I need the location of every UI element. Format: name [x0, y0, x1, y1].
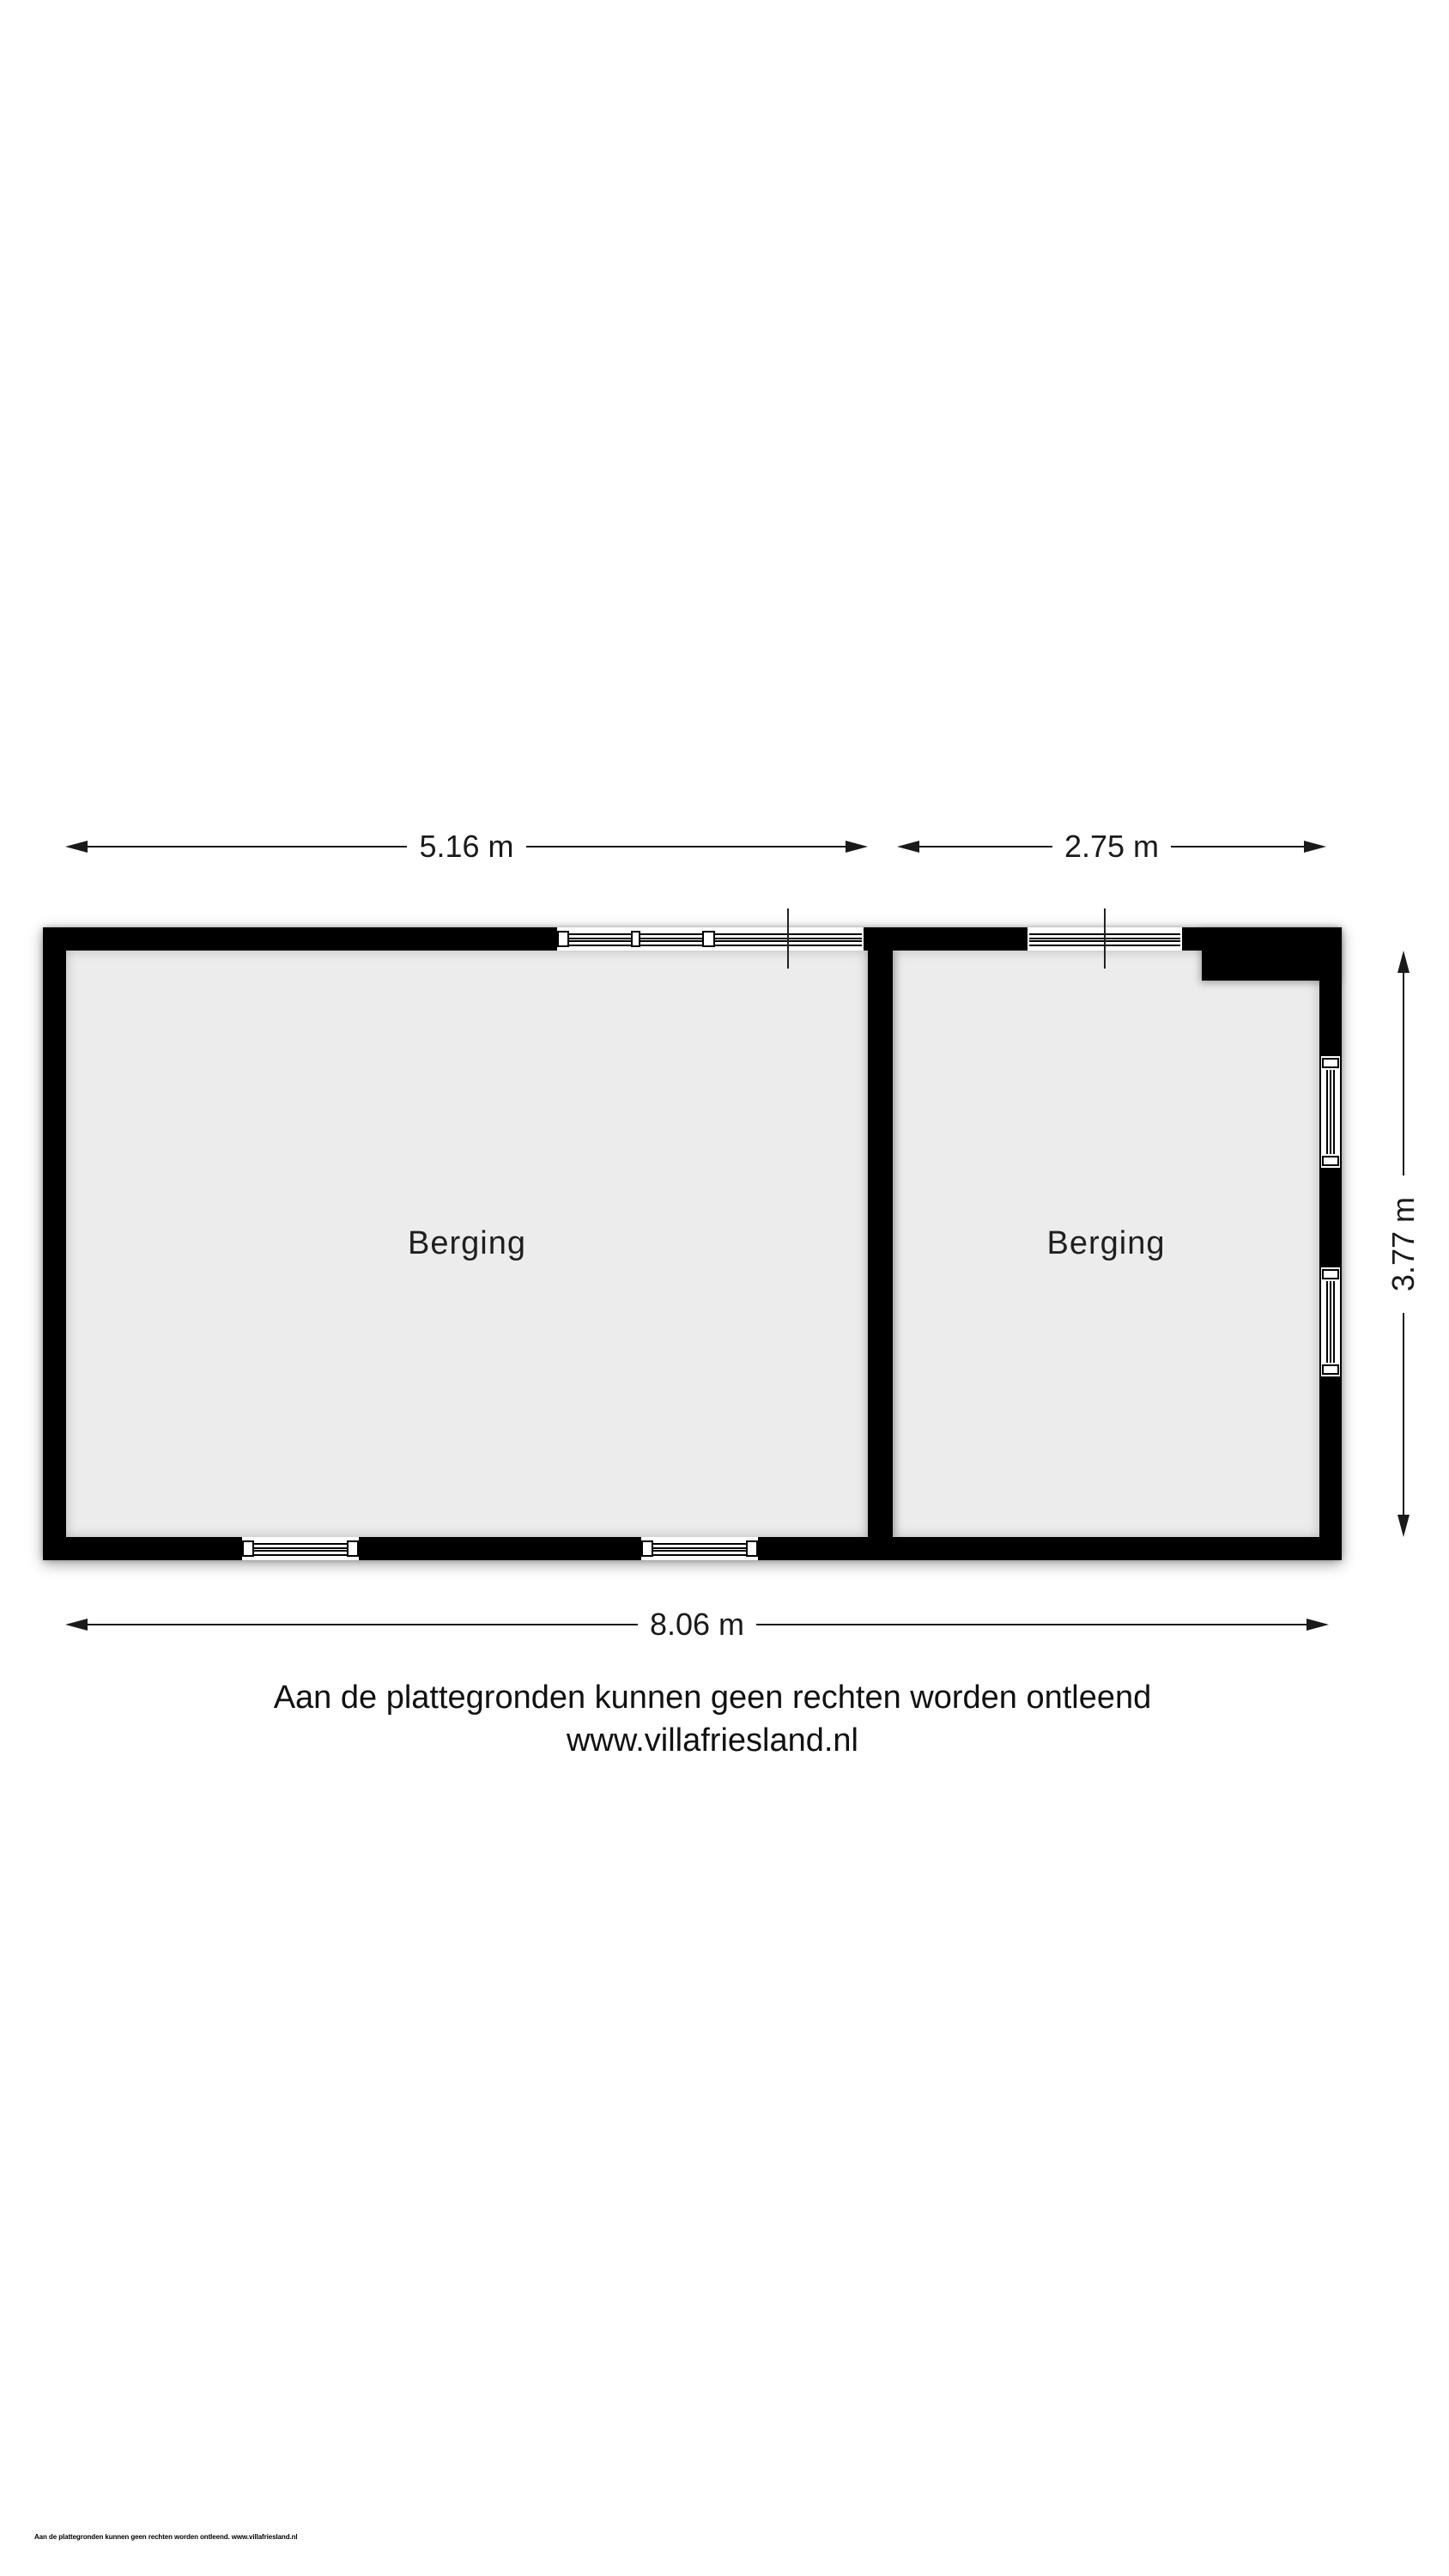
- footnote-text: Aan de plattegronden kunnen geen rechten…: [34, 2533, 298, 2541]
- room-label: Berging: [1047, 1225, 1166, 1262]
- dimension-bottom: 8.06 m: [65, 1609, 1329, 1640]
- window-right-lower: [1319, 1267, 1342, 1376]
- dimension-line: [1403, 1313, 1404, 1516]
- dimension-label: 3.77 m: [1385, 1188, 1422, 1299]
- dimension-line: [756, 1624, 1307, 1625]
- dimension-line: [919, 846, 1052, 848]
- dimension-line: [88, 1624, 638, 1625]
- floorplan: Berging Berging: [43, 927, 1342, 1560]
- dimension-label: 8.06 m: [638, 1607, 756, 1643]
- dimension-top-left: 5.16 m: [65, 831, 868, 862]
- dimension-label: 5.16 m: [407, 829, 525, 865]
- extension-line-right: [1104, 908, 1106, 969]
- arrow-up-icon: [1397, 951, 1410, 973]
- arrow-right-icon: [1304, 841, 1326, 853]
- website-text: www.villafriesland.nl: [52, 1722, 1373, 1759]
- room-berging-left: Berging: [66, 951, 868, 1537]
- dimension-line: [1403, 973, 1404, 1176]
- room-label: Berging: [408, 1225, 526, 1262]
- arrow-left-icon: [897, 841, 919, 853]
- partition-wall: [868, 951, 893, 1537]
- room-berging-right: Berging: [893, 951, 1319, 1537]
- window-top-left: [557, 927, 864, 951]
- dimension-line: [1171, 846, 1304, 848]
- arrow-right-icon: [1307, 1619, 1329, 1631]
- arrow-left-icon: [65, 841, 88, 853]
- window-bottom-right: [641, 1537, 758, 1560]
- dimension-label: 2.75 m: [1052, 829, 1171, 865]
- arrow-down-icon: [1397, 1515, 1410, 1537]
- arrow-left-icon: [65, 1619, 88, 1631]
- dimension-top-right: 2.75 m: [897, 831, 1326, 862]
- arrow-right-icon: [846, 841, 868, 853]
- extension-line-left: [787, 908, 789, 969]
- corner-wall-block: [1202, 927, 1342, 981]
- window-right-upper: [1319, 1056, 1342, 1168]
- window-bottom-left: [242, 1537, 359, 1560]
- dimension-right: 3.77 m: [1388, 951, 1419, 1537]
- disclaimer-text: Aan de plattegronden kunnen geen rechten…: [52, 1680, 1373, 1716]
- dimension-line: [88, 846, 407, 848]
- dimension-line: [526, 846, 846, 848]
